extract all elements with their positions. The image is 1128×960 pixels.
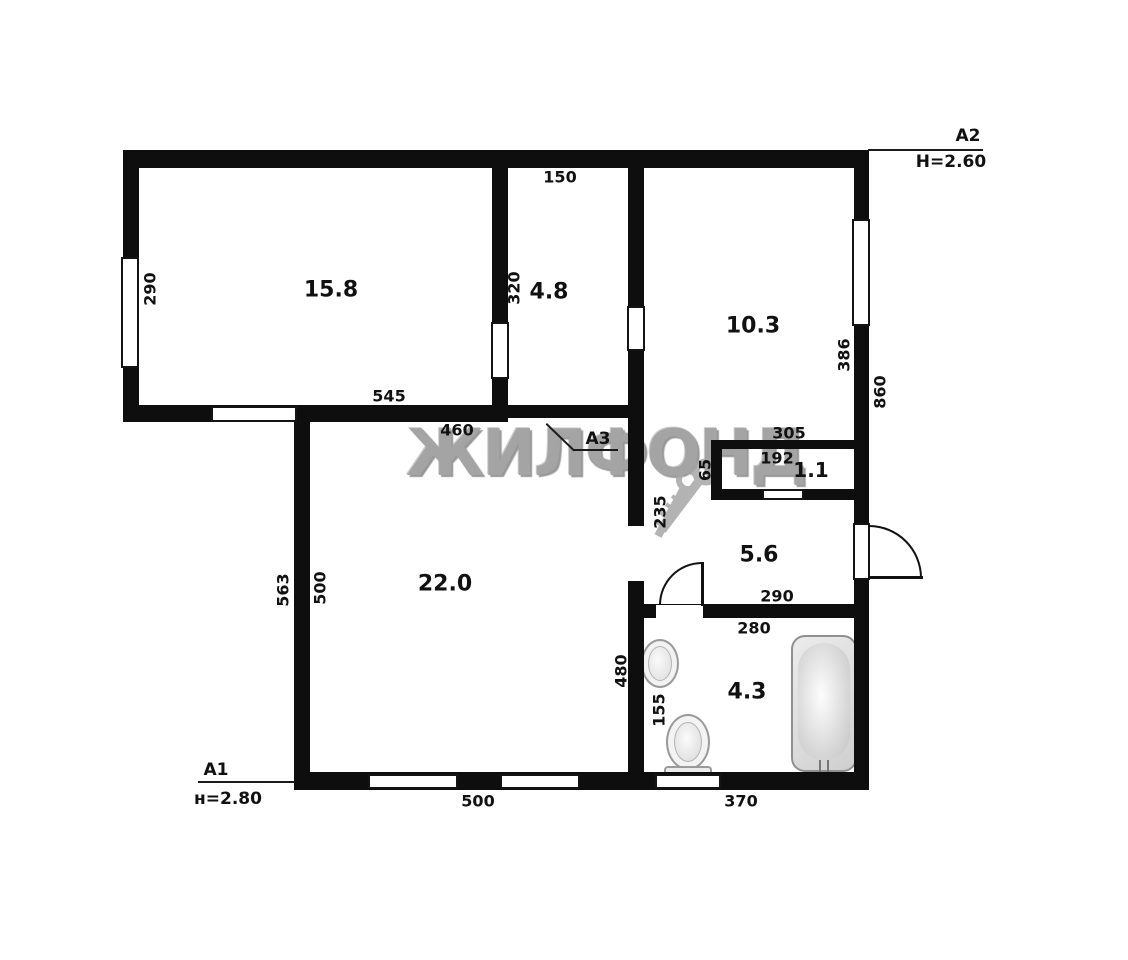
- marker-a2-line: [868, 149, 983, 151]
- dim-living-left: 290: [141, 272, 160, 305]
- dim-corridor-bottom: 290: [760, 587, 793, 606]
- dim-passage: 65: [696, 459, 715, 481]
- entrance-door-leaf: [869, 576, 923, 579]
- window-bathroom-bottom: [655, 774, 721, 789]
- dim-bath-left: 480: [612, 654, 631, 687]
- bathtub-drain-icon: [827, 760, 829, 772]
- sink: [641, 639, 679, 688]
- marker-a1-height: н=2.80: [194, 789, 262, 809]
- bathroom-door-leaf: [701, 562, 704, 606]
- room-label-corridor: 5.6: [740, 543, 779, 568]
- opening-kitchen-bedroom: [627, 306, 645, 351]
- dim-bedroom-right: 386: [835, 338, 854, 371]
- dim-hall-left: 500: [311, 571, 330, 604]
- wall-living-bottom: [123, 405, 508, 422]
- toilet-bowl: [666, 714, 710, 770]
- room-label-bathroom: 4.3: [728, 680, 767, 705]
- dim-hall-bottom: 500: [461, 792, 494, 811]
- dim-living-bottom: 545: [372, 387, 405, 406]
- wall-main-vertical: [628, 168, 644, 790]
- dim-bath-top: 280: [737, 619, 770, 638]
- dim-right-outer: 860: [871, 375, 890, 408]
- entrance-door-arc: [869, 525, 922, 578]
- dim-bath-inner: 155: [650, 693, 669, 726]
- room-label-closet: 1.1: [793, 458, 828, 482]
- marker-a2-height: H=2.60: [916, 152, 986, 172]
- marker-a2-label: A2: [956, 126, 981, 146]
- dim-hall-outer-left: 563: [274, 573, 293, 606]
- dim-closet-inner: 192: [760, 449, 793, 468]
- wall-kitchen-bottom: [492, 405, 643, 418]
- bathtub-drain-icon: [819, 760, 821, 772]
- marker-a1-label: A1: [204, 760, 229, 780]
- dim-closet-top: 305: [772, 424, 805, 443]
- window-hall-bottom-1: [368, 774, 458, 789]
- wall-hall-left: [294, 405, 310, 790]
- dim-hall-top: 460: [440, 421, 473, 440]
- opening-corridor-bathroom: [656, 605, 703, 618]
- dim-bath-bottom: 370: [724, 792, 757, 811]
- bathtub: [791, 635, 857, 772]
- opening-hall-corridor: [628, 526, 644, 581]
- window-living-left: [121, 257, 139, 368]
- room-label-living: 15.8: [304, 278, 358, 303]
- marker-a3-leader-horizontal: [573, 449, 618, 451]
- dim-corridor-left: 235: [651, 495, 670, 528]
- wall-hall-bottom: [294, 772, 644, 790]
- wall-top: [123, 150, 869, 168]
- window-hall-bottom-2: [500, 774, 580, 789]
- opening-entrance-door: [853, 523, 870, 580]
- window-living-bottom: [211, 406, 297, 422]
- window-bedroom-right: [852, 219, 870, 326]
- opening-living-kitchen: [491, 322, 509, 379]
- floor-plan-canvas: ЖИЛФОНД: [0, 0, 1128, 960]
- closet-door-insert: [762, 489, 804, 500]
- bathroom-door-arc: [659, 562, 702, 605]
- room-label-hall: 22.0: [418, 572, 472, 597]
- marker-a3-label: A3: [586, 429, 611, 449]
- dim-kitchen-left: 320: [505, 271, 524, 304]
- dim-kitchen-top: 150: [543, 168, 576, 187]
- room-label-kitchen: 4.8: [530, 280, 569, 305]
- room-label-bedroom: 10.3: [726, 314, 780, 339]
- marker-a1-line: [198, 781, 295, 783]
